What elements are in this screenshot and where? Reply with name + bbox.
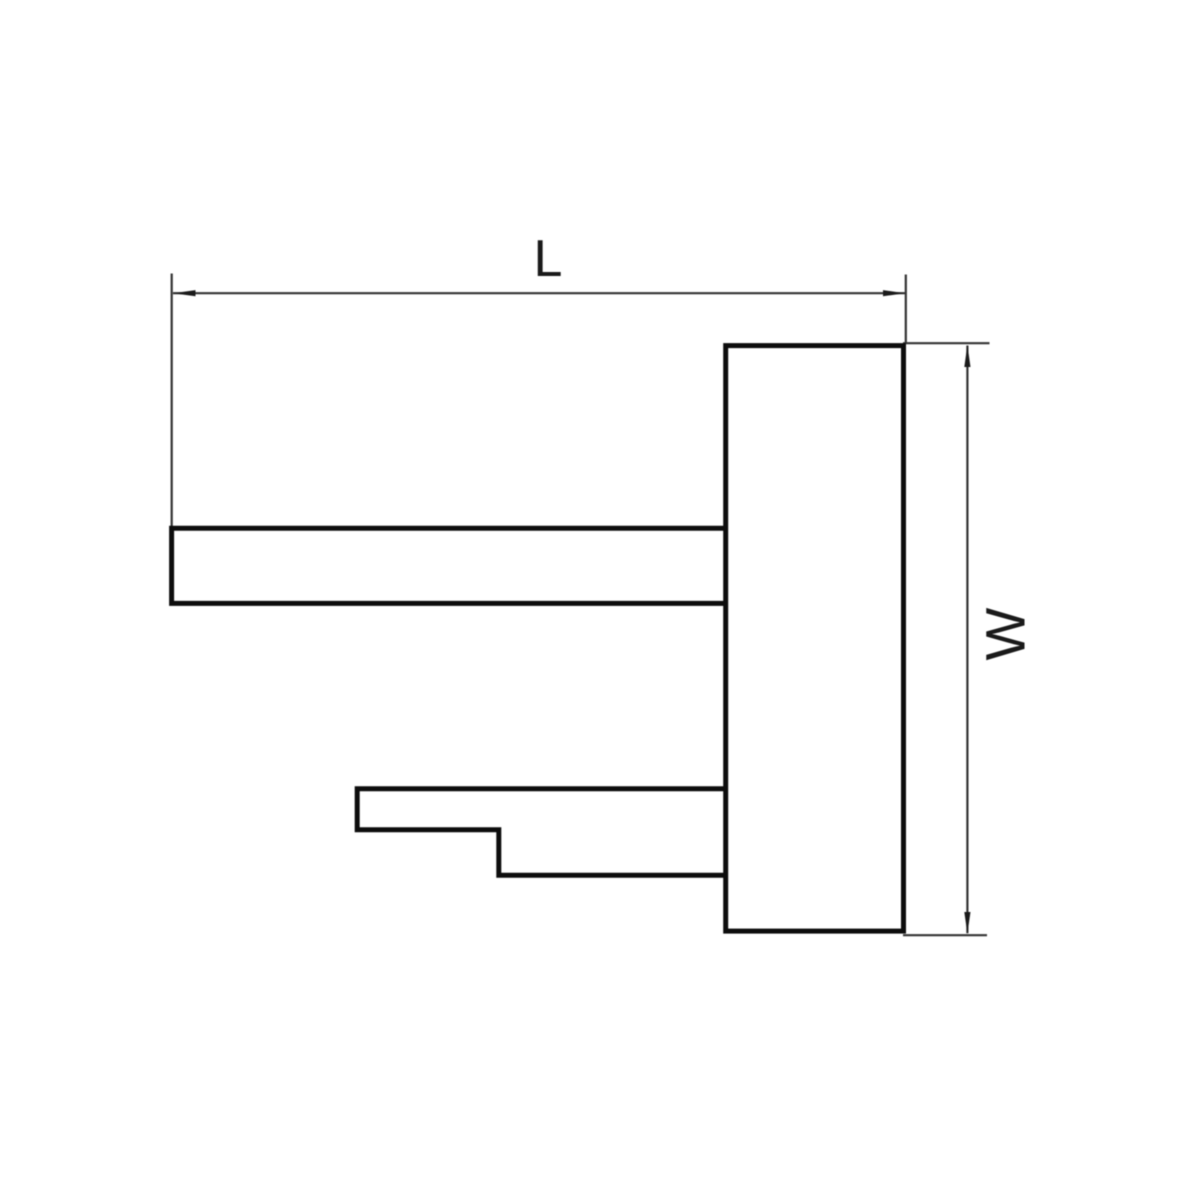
svg-text:W: W (974, 607, 1037, 660)
svg-text:L: L (534, 230, 563, 288)
